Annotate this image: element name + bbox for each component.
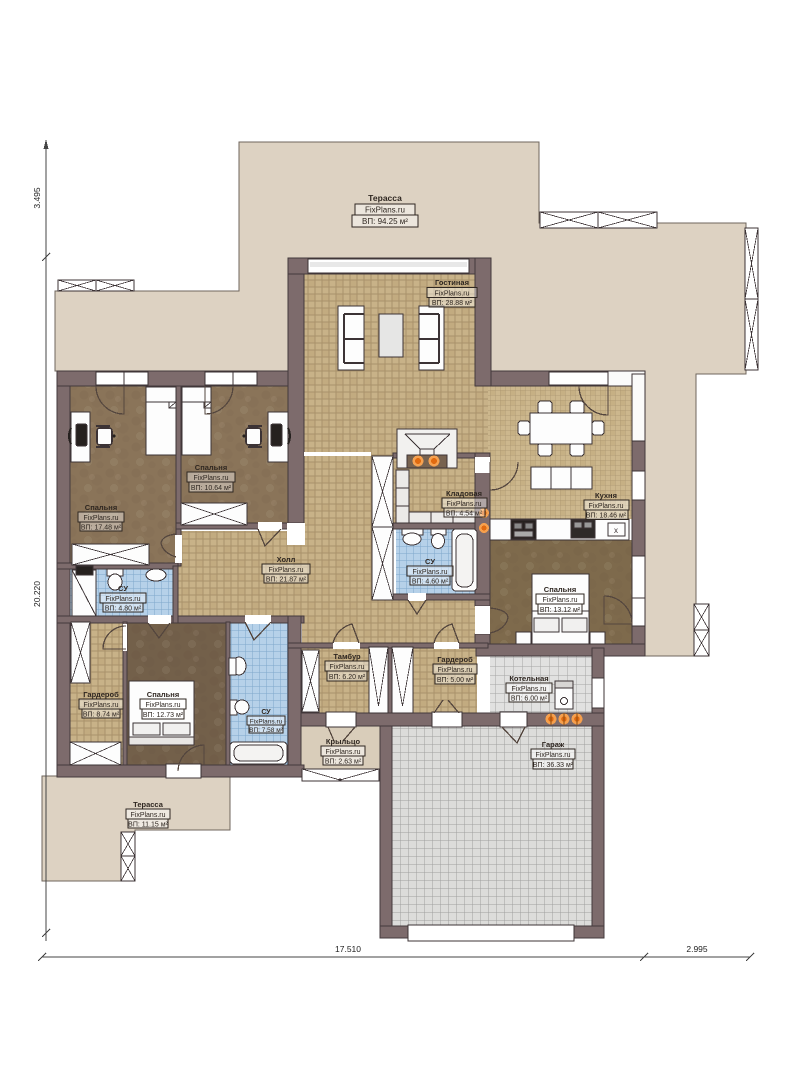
svg-text:Котельная: Котельная: [509, 674, 548, 683]
svg-text:Терасса: Терасса: [368, 193, 402, 203]
svg-text:ВП: 13.12 м²: ВП: 13.12 м²: [540, 607, 581, 614]
svg-text:FixPlans.ru: FixPlans.ru: [535, 752, 570, 759]
svg-text:ВП: 7.58 м²: ВП: 7.58 м²: [249, 727, 284, 734]
svg-text:Кладовая: Кладовая: [446, 489, 482, 498]
svg-text:FixPlans.ru: FixPlans.ru: [83, 515, 118, 522]
svg-text:ВП: 17.48 м²: ВП: 17.48 м²: [81, 525, 122, 532]
svg-text:ВП: 11.15 м²: ВП: 11.15 м²: [128, 822, 168, 829]
svg-text:Тамбур: Тамбур: [333, 652, 361, 661]
svg-text:ВП: 6.00 м²: ВП: 6.00 м²: [511, 696, 548, 703]
svg-text:FixPlans.ru: FixPlans.ru: [588, 503, 623, 510]
svg-text:ВП: 8.74 м²: ВП: 8.74 м²: [83, 712, 120, 719]
svg-text:FixPlans.ru: FixPlans.ru: [130, 812, 165, 819]
svg-text:ВП: 28.88 м²: ВП: 28.88 м²: [432, 300, 473, 307]
svg-text:Гараж: Гараж: [542, 740, 565, 749]
svg-text:Терасса: Терасса: [133, 800, 164, 809]
svg-text:Спальня: Спальня: [147, 690, 179, 699]
svg-text:ВП: 12.73 м²: ВП: 12.73 м²: [143, 712, 184, 719]
svg-text:17.510: 17.510: [335, 944, 361, 954]
svg-text:FixPlans.ru: FixPlans.ru: [365, 206, 405, 215]
svg-text:FixPlans.ru: FixPlans.ru: [412, 569, 447, 576]
svg-text:2.995: 2.995: [686, 944, 708, 954]
svg-text:ВП: 4.80 м²: ВП: 4.80 м²: [105, 606, 142, 613]
svg-text:20.220: 20.220: [32, 581, 42, 607]
svg-text:ВП: 2.63 м²: ВП: 2.63 м²: [325, 759, 362, 766]
svg-text:СУ: СУ: [425, 557, 435, 566]
svg-text:Крыльцо: Крыльцо: [326, 737, 361, 746]
svg-text:Гостиная: Гостиная: [435, 278, 469, 287]
svg-text:ВП: 94.25 м²: ВП: 94.25 м²: [362, 217, 408, 226]
svg-text:FixPlans.ru: FixPlans.ru: [446, 501, 481, 508]
svg-text:СУ: СУ: [118, 584, 128, 593]
svg-text:Спальня: Спальня: [195, 463, 227, 472]
svg-text:FixPlans.ru: FixPlans.ru: [329, 664, 364, 671]
svg-text:Кухня: Кухня: [595, 491, 617, 500]
svg-text:ВП: 4.60 м²: ВП: 4.60 м²: [412, 579, 449, 586]
svg-text:ВП: 4.54 м²: ВП: 4.54 м²: [446, 511, 483, 518]
svg-text:FixPlans.ru: FixPlans.ru: [542, 597, 577, 604]
svg-text:FixPlans.ru: FixPlans.ru: [145, 702, 180, 709]
svg-text:Гардероб: Гардероб: [437, 655, 473, 664]
svg-text:FixPlans.ru: FixPlans.ru: [250, 719, 283, 726]
svg-text:ВП: 5.00 м²: ВП: 5.00 м²: [437, 677, 474, 684]
svg-text:ВП: 10.64 м²: ВП: 10.64 м²: [191, 485, 232, 492]
svg-text:FixPlans.ru: FixPlans.ru: [83, 702, 118, 709]
svg-text:FixPlans.ru: FixPlans.ru: [268, 567, 303, 574]
svg-text:ВП: 18.46 м²: ВП: 18.46 м²: [586, 513, 627, 520]
svg-text:FixPlans.ru: FixPlans.ru: [105, 596, 140, 603]
svg-text:ВП: 6.20 м²: ВП: 6.20 м²: [329, 674, 366, 681]
svg-text:СУ: СУ: [261, 709, 271, 716]
svg-text:FixPlans.ru: FixPlans.ru: [193, 475, 228, 482]
svg-text:3.495: 3.495: [32, 187, 42, 209]
svg-text:FixPlans.ru: FixPlans.ru: [437, 667, 472, 674]
svg-text:FixPlans.ru: FixPlans.ru: [511, 686, 546, 693]
svg-text:Холл: Холл: [277, 555, 296, 564]
svg-text:FixPlans.ru: FixPlans.ru: [325, 749, 360, 756]
svg-text:Спальня: Спальня: [544, 585, 576, 594]
svg-text:x: x: [614, 526, 618, 535]
svg-text:ВП: 21.87 м²: ВП: 21.87 м²: [266, 577, 307, 584]
svg-text:ВП: 36.33 м²: ВП: 36.33 м²: [533, 762, 574, 769]
svg-text:Спальня: Спальня: [85, 503, 117, 512]
svg-text:FixPlans.ru: FixPlans.ru: [434, 291, 469, 298]
svg-text:Гардероб: Гардероб: [83, 690, 119, 699]
